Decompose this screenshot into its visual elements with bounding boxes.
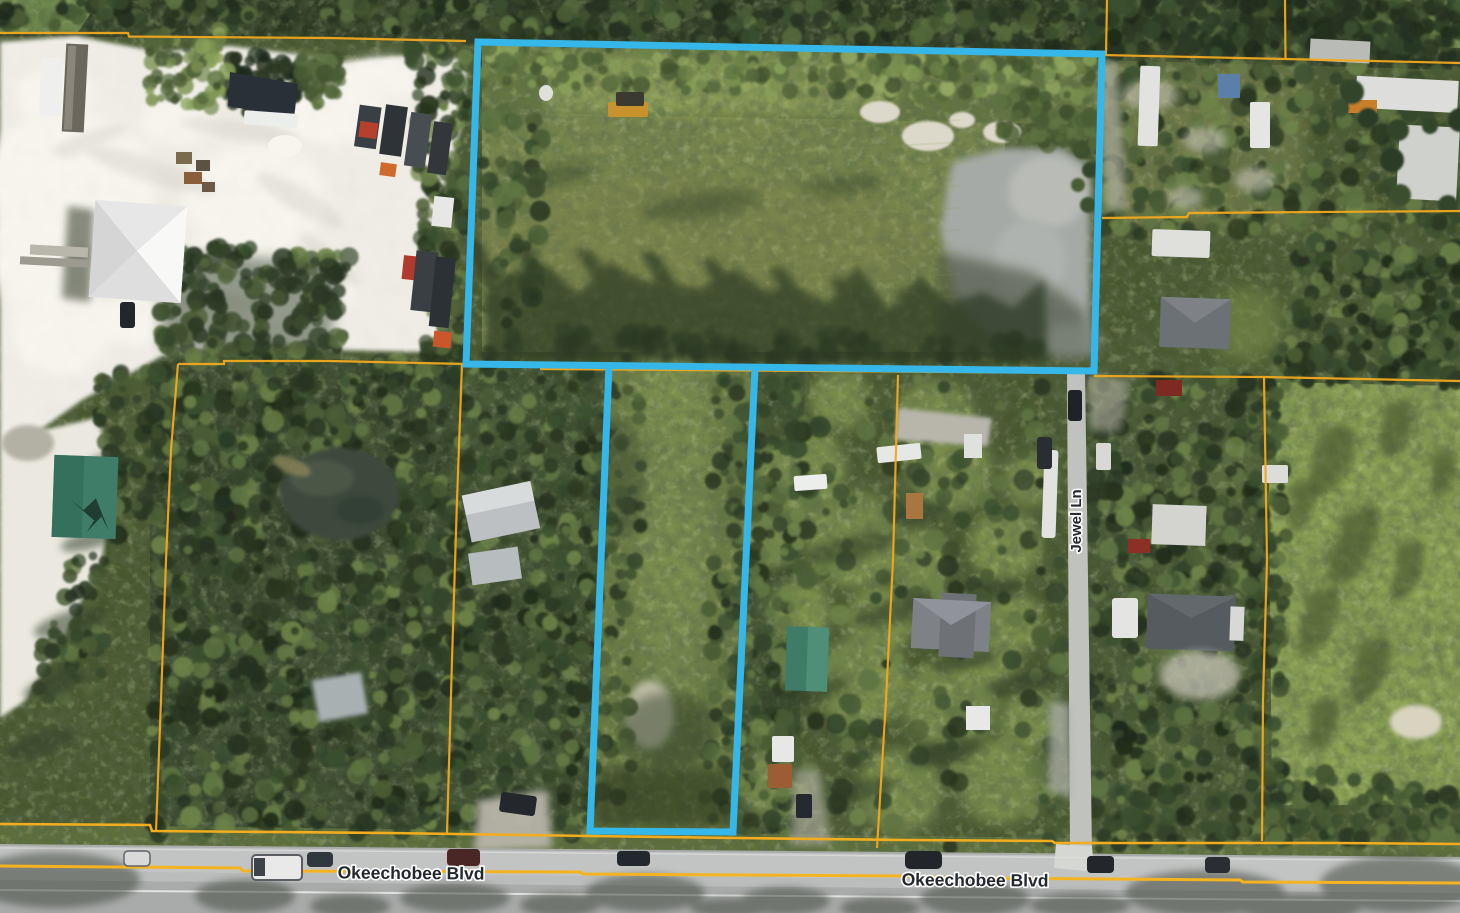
svg-text:Okeechobee Blvd: Okeechobee Blvd xyxy=(338,862,485,883)
svg-text:Jewel Ln: Jewel Ln xyxy=(1068,489,1085,552)
svg-text:Okeechobee Blvd: Okeechobee Blvd xyxy=(902,869,1049,890)
